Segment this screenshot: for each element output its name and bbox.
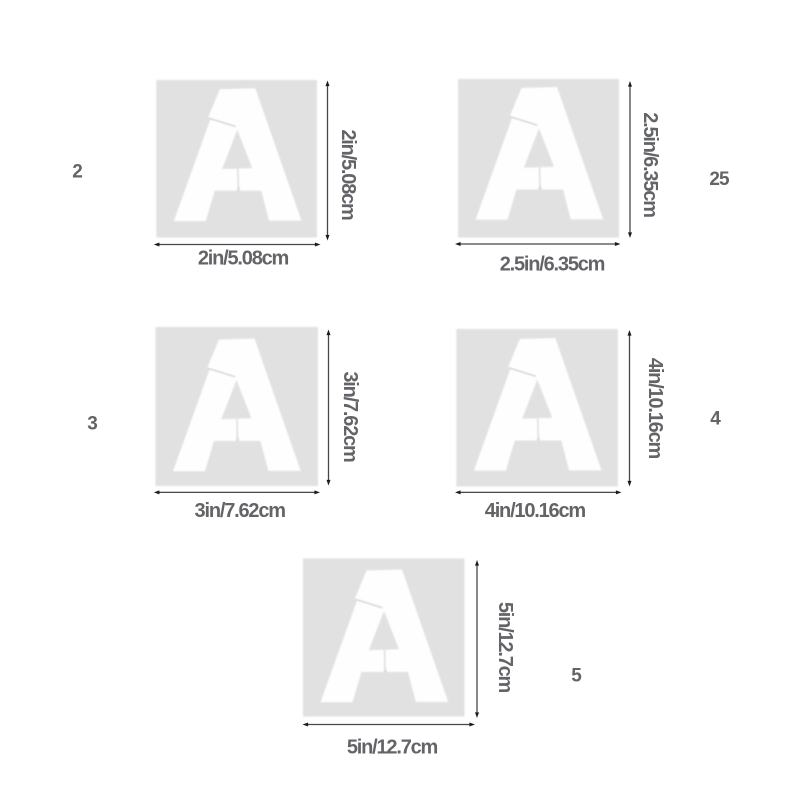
svg-text:2: 2: [72, 162, 82, 183]
svg-text:2.5in/6.35cm: 2.5in/6.35cm: [639, 112, 661, 217]
svg-text:2in/5.08cm: 2in/5.08cm: [198, 248, 289, 270]
svg-text:4: 4: [710, 409, 721, 430]
svg-text:4in/10.16cm: 4in/10.16cm: [644, 358, 666, 459]
svg-text:5: 5: [571, 666, 582, 687]
svg-text:25: 25: [709, 169, 730, 190]
svg-text:2.5in/6.35cm: 2.5in/6.35cm: [500, 254, 605, 276]
svg-text:3in/7.62cm: 3in/7.62cm: [339, 371, 361, 462]
svg-text:3in/7.62cm: 3in/7.62cm: [195, 500, 286, 522]
svg-text:3: 3: [87, 414, 97, 435]
svg-text:2in/5.08cm: 2in/5.08cm: [337, 129, 359, 220]
svg-text:4in/10.16cm: 4in/10.16cm: [485, 500, 586, 522]
svg-text:5in/12.7cm: 5in/12.7cm: [347, 736, 438, 758]
svg-text:5in/12.7cm: 5in/12.7cm: [494, 602, 516, 693]
